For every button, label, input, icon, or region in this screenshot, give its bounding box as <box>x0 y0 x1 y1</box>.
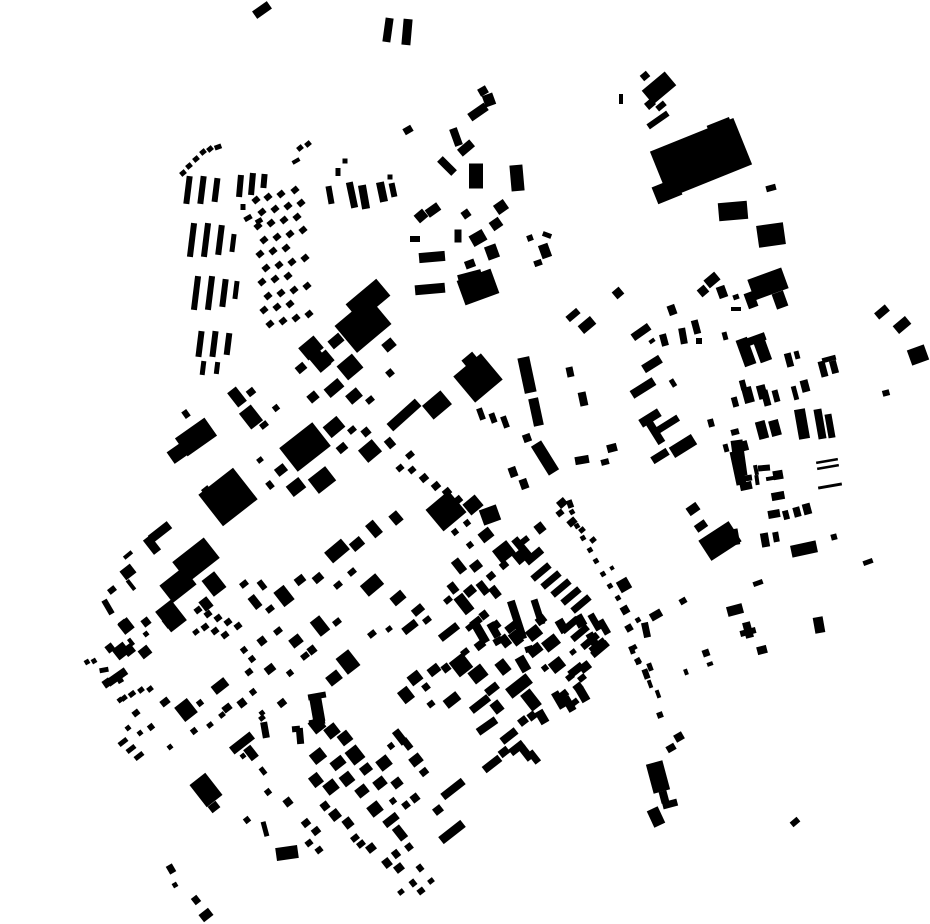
building-footprint <box>258 714 266 722</box>
building-footprint <box>190 727 198 735</box>
building-footprint <box>200 361 207 376</box>
building-footprint <box>519 478 530 490</box>
building-footprint <box>205 276 215 310</box>
building-footprint <box>273 626 283 636</box>
building-footprint <box>296 198 305 207</box>
building-footprint <box>290 185 299 194</box>
building-footprint <box>159 696 170 707</box>
building-footprint <box>390 776 403 789</box>
building-footprint <box>384 437 397 450</box>
building-footprint <box>555 508 564 517</box>
building-footprint <box>185 162 193 170</box>
building-footprint <box>756 384 768 400</box>
building-footprint <box>538 243 552 260</box>
building-footprint <box>648 338 655 345</box>
building-footprint <box>233 621 242 630</box>
building-footprint <box>292 157 301 164</box>
building-footprint <box>476 580 491 596</box>
building-footprint <box>455 230 462 243</box>
building-footprint <box>111 642 130 661</box>
building-footprint <box>304 838 313 847</box>
building-footprint <box>694 519 708 532</box>
building-footprint <box>578 391 589 406</box>
building-footprint <box>731 396 739 407</box>
building-footprint <box>716 285 729 299</box>
building-footprint <box>758 464 770 471</box>
building-footprint <box>432 804 444 816</box>
building-footprint <box>272 232 281 241</box>
building-footprint <box>343 159 348 164</box>
building-footprint <box>415 863 424 872</box>
building-footprint <box>191 895 201 906</box>
building-footprint <box>359 762 373 776</box>
building-footprint <box>381 337 397 352</box>
building-footprint <box>265 319 274 328</box>
building-footprint <box>641 355 663 373</box>
building-footprint <box>276 189 285 198</box>
building-footprint <box>84 659 91 666</box>
building-footprint <box>541 664 549 672</box>
building-footprint <box>607 583 614 590</box>
building-footprint <box>256 635 267 646</box>
building-footprint <box>520 688 542 711</box>
building-footprint <box>191 276 201 310</box>
building-footprint <box>460 208 471 219</box>
building-footprint <box>365 520 383 539</box>
building-footprint <box>281 243 290 252</box>
building-footprint <box>295 362 308 375</box>
building-footprint <box>328 808 342 822</box>
building-footprint <box>874 304 890 319</box>
building-footprint <box>509 164 524 191</box>
building-footprint <box>310 615 331 637</box>
building-footprint <box>146 685 154 693</box>
building-footprint <box>755 420 769 440</box>
building-footprint <box>389 183 398 198</box>
building-footprint <box>239 405 263 430</box>
building-footprint <box>387 742 395 750</box>
building-footprint <box>382 812 400 828</box>
building-footprint <box>426 699 435 708</box>
building-footprint <box>282 796 293 807</box>
building-footprint <box>142 630 149 637</box>
building-footprint <box>794 350 801 359</box>
building-footprint <box>336 649 361 675</box>
building-footprint <box>741 386 755 404</box>
building-footprint <box>137 686 145 694</box>
building-footprint <box>587 547 594 554</box>
building-footprint <box>283 271 292 280</box>
building-footprint <box>241 204 246 210</box>
building-footprint <box>907 344 929 365</box>
building-footprint <box>772 532 780 543</box>
building-footprint <box>214 362 220 375</box>
building-footprint <box>479 504 501 525</box>
building-footprint <box>556 497 568 509</box>
building-footprint <box>272 404 280 412</box>
building-footprint <box>248 594 263 610</box>
building-footprint <box>686 502 701 516</box>
building-footprint <box>401 19 412 46</box>
building-footprint <box>756 645 768 655</box>
building-footprint <box>308 772 324 788</box>
building-footprint <box>476 716 499 735</box>
building-footprint <box>279 215 288 224</box>
building-footprint <box>292 212 301 221</box>
building-footprint <box>416 886 425 895</box>
building-footprint <box>213 613 222 622</box>
building-footprint <box>533 259 543 267</box>
building-footprint <box>772 389 781 402</box>
building-footprint <box>647 680 653 689</box>
building-footprint <box>542 231 552 239</box>
building-footprint <box>224 333 233 356</box>
building-footprint <box>401 619 419 635</box>
building-footprint <box>202 571 227 597</box>
building-footprint <box>253 221 262 230</box>
building-footprint <box>270 204 279 213</box>
building-footprint <box>248 173 256 195</box>
building-footprint <box>522 433 532 443</box>
building-footprint <box>566 366 575 377</box>
building-footprint <box>232 281 239 299</box>
building-footprint <box>324 378 345 398</box>
building-footprint <box>438 622 460 642</box>
building-footprint <box>731 307 741 311</box>
building-footprint <box>437 156 457 176</box>
building-footprint <box>131 708 140 717</box>
building-footprint <box>248 655 256 663</box>
building-footprint <box>192 155 200 163</box>
building-footprint <box>528 397 544 426</box>
building-footprint <box>261 263 270 272</box>
building-footprint <box>419 251 446 263</box>
building-footprint <box>322 778 340 795</box>
building-footprint <box>223 617 232 626</box>
building-footprint <box>802 503 813 516</box>
building-footprint <box>260 174 267 188</box>
building-footprint <box>252 1 272 19</box>
building-footprint <box>181 409 191 419</box>
building-footprint <box>486 571 497 582</box>
building-footprint <box>244 667 253 676</box>
building-footprint <box>388 510 403 526</box>
building-footprint <box>134 751 145 761</box>
building-footprint <box>291 313 300 322</box>
building-footprint <box>647 806 665 827</box>
building-footprint <box>415 283 446 296</box>
building-footprint <box>656 711 664 719</box>
building-footprint <box>257 207 266 216</box>
building-footprint <box>195 331 204 358</box>
building-footprint <box>197 176 206 205</box>
building-footprint <box>268 246 277 255</box>
building-footprint <box>192 628 200 636</box>
building-footprint <box>372 775 388 790</box>
building-footprint <box>818 482 842 489</box>
building-footprint <box>354 783 370 798</box>
building-footprint <box>209 331 218 358</box>
building-footprint <box>365 842 377 854</box>
building-footprint <box>277 698 288 708</box>
building-footprint <box>278 316 287 325</box>
building-footprint <box>358 439 382 463</box>
building-footprint <box>730 428 739 436</box>
building-footprint <box>577 673 587 683</box>
building-footprint <box>270 274 279 283</box>
building-footprint <box>201 223 211 257</box>
building-footprint <box>624 623 634 633</box>
building-footprint <box>308 466 336 494</box>
building-footprint <box>346 182 358 209</box>
building-footprint <box>395 463 404 472</box>
building-footprint <box>488 585 502 599</box>
building-footprint <box>219 279 228 308</box>
building-footprint <box>645 419 666 445</box>
building-footprint <box>257 277 266 286</box>
building-footprint <box>824 414 835 439</box>
building-footprint <box>249 688 257 696</box>
building-footprint <box>239 579 249 589</box>
building-footprint <box>198 468 257 527</box>
building-footprint <box>279 422 331 471</box>
building-footprint <box>565 308 580 322</box>
building-footprint <box>494 658 511 676</box>
building-footprint <box>469 229 488 247</box>
building-footprint <box>259 766 268 775</box>
building-footprint <box>190 773 223 807</box>
building-footprint <box>650 448 670 464</box>
building-footprint <box>446 581 459 595</box>
building-footprint <box>333 580 343 590</box>
building-footprint <box>419 767 430 777</box>
building-footprint <box>243 816 251 824</box>
building-footprint <box>756 222 786 248</box>
building-footprint <box>236 175 244 197</box>
building-footprint <box>236 697 247 708</box>
building-footprint <box>408 878 417 887</box>
building-footprint <box>782 510 790 520</box>
building-footprint <box>329 755 346 771</box>
building-footprint <box>792 506 801 517</box>
building-footprint <box>683 668 689 675</box>
building-footprint <box>239 752 246 759</box>
building-footprint <box>817 464 839 470</box>
building-footprint <box>401 800 411 810</box>
building-footprint <box>265 480 275 490</box>
building-footprint <box>273 585 294 607</box>
building-footprint <box>469 164 483 189</box>
building-footprint <box>311 826 322 836</box>
building-footprint <box>200 622 209 631</box>
building-footprint <box>525 624 543 642</box>
building-footprint <box>229 234 236 252</box>
building-footprint <box>227 387 247 408</box>
building-footprint <box>206 721 214 729</box>
building-footprint <box>600 571 607 578</box>
building-footprint <box>469 559 483 573</box>
building-footprint <box>327 333 344 350</box>
building-footprint <box>358 184 370 209</box>
building-footprint <box>206 145 214 153</box>
building-footprint <box>619 94 623 104</box>
building-footprint <box>259 235 268 244</box>
building-footprint <box>246 387 257 397</box>
building-footprint <box>703 272 720 289</box>
building-footprint <box>449 127 463 147</box>
building-footprint <box>347 425 357 435</box>
building-footprint <box>427 877 435 885</box>
building-footprint <box>526 234 534 242</box>
building-footprint <box>257 579 268 591</box>
building-footprint <box>251 195 260 204</box>
building-footprint <box>298 225 307 234</box>
building-footprint <box>261 821 270 837</box>
building-footprint <box>289 285 298 294</box>
building-footprint <box>240 646 248 654</box>
building-footprint <box>381 857 393 869</box>
building-footprint <box>118 737 129 747</box>
building-footprint <box>375 754 393 771</box>
building-footprint <box>641 622 651 638</box>
building-footprint <box>286 669 294 677</box>
building-footprint <box>389 797 397 805</box>
building-footprint <box>616 577 632 593</box>
building-footprint <box>101 599 114 616</box>
building-footprint <box>243 745 259 762</box>
building-footprint <box>499 727 518 744</box>
building-footprint <box>263 291 272 300</box>
building-footprint <box>830 533 837 540</box>
building-footprint <box>443 691 462 709</box>
building-footprint <box>397 888 405 896</box>
building-footprint <box>126 579 137 591</box>
building-footprint <box>600 458 609 466</box>
building-footprint <box>387 399 422 432</box>
building-footprint <box>255 249 264 258</box>
building-footprint <box>147 723 155 731</box>
building-footprint <box>646 760 670 793</box>
building-footprint <box>665 743 676 754</box>
building-footprint <box>800 379 811 393</box>
building-footprint <box>243 214 252 222</box>
building-footprint <box>526 710 537 721</box>
building-footprint <box>829 360 839 374</box>
building-footprint <box>300 651 310 661</box>
building-footprint <box>336 442 349 455</box>
building-footprint <box>300 253 309 262</box>
building-footprint <box>469 694 491 714</box>
building-footprint <box>477 527 494 544</box>
building-footprint <box>615 595 622 602</box>
building-footprint <box>659 333 669 346</box>
building-footprint <box>211 677 230 695</box>
building-footprint <box>128 690 137 698</box>
building-footprint <box>630 377 657 398</box>
building-footprint <box>323 416 346 438</box>
building-footprint <box>312 572 325 585</box>
building-footprint-map <box>0 0 930 924</box>
building-footprint <box>482 755 503 774</box>
building-footprint <box>276 288 285 297</box>
building-footprint <box>285 229 294 238</box>
building-footprint <box>656 415 680 434</box>
building-footprint <box>541 633 561 652</box>
building-footprint <box>366 800 384 817</box>
building-footprint <box>498 746 511 758</box>
building-footprint <box>790 817 801 827</box>
building-footprint <box>569 509 576 516</box>
building-footprint <box>294 574 307 586</box>
building-footprint <box>166 863 177 874</box>
building-footprint <box>655 100 667 111</box>
building-footprint <box>427 663 442 677</box>
building-footprint <box>339 771 356 788</box>
building-footprint <box>199 148 207 156</box>
building-footprint <box>702 649 711 658</box>
building-footprint <box>345 744 366 765</box>
building-footprint <box>203 609 212 618</box>
building-footprint <box>649 609 663 622</box>
building-footprint <box>673 731 685 742</box>
building-footprint <box>345 387 363 404</box>
building-footprint <box>634 657 642 665</box>
building-footprint <box>193 605 202 614</box>
building-footprint <box>655 690 661 699</box>
building-footprint <box>126 744 137 754</box>
building-footprint <box>391 849 401 860</box>
building-footprint <box>393 862 405 874</box>
building-footprint <box>696 338 702 344</box>
building-footprint <box>367 629 377 639</box>
building-footprint <box>515 655 532 674</box>
building-footprint <box>707 418 715 427</box>
building-footprint <box>266 218 275 227</box>
building-footprint <box>138 645 153 660</box>
building-footprint <box>813 409 826 440</box>
building-footprint <box>589 536 597 544</box>
building-footprint <box>136 729 143 736</box>
building-footprint <box>535 709 550 726</box>
building-footprint <box>467 103 489 122</box>
building-footprint <box>336 168 341 176</box>
building-footprint <box>172 882 179 889</box>
building-footprint <box>722 331 729 340</box>
building-footprint <box>183 176 192 205</box>
building-footprint <box>196 699 204 707</box>
building-footprint <box>117 617 134 635</box>
building-footprint <box>431 481 442 492</box>
building-footprint <box>210 626 219 635</box>
building-footprint <box>123 550 133 559</box>
building-footprint <box>492 540 516 564</box>
building-footprint <box>790 540 818 557</box>
building-footprint <box>283 201 292 210</box>
building-footprint <box>119 564 136 581</box>
building-footprint <box>405 450 415 460</box>
building-footprint <box>768 419 782 437</box>
building-footprint <box>174 698 198 722</box>
building-footprint <box>332 617 342 627</box>
building-footprint <box>285 299 294 308</box>
building-footprint <box>314 845 323 854</box>
footprint-canvas <box>0 0 930 924</box>
building-footprint <box>392 824 408 841</box>
building-footprint <box>531 599 546 626</box>
building-footprint <box>893 316 912 334</box>
building-footprint <box>263 192 272 201</box>
building-footprint <box>422 390 452 419</box>
